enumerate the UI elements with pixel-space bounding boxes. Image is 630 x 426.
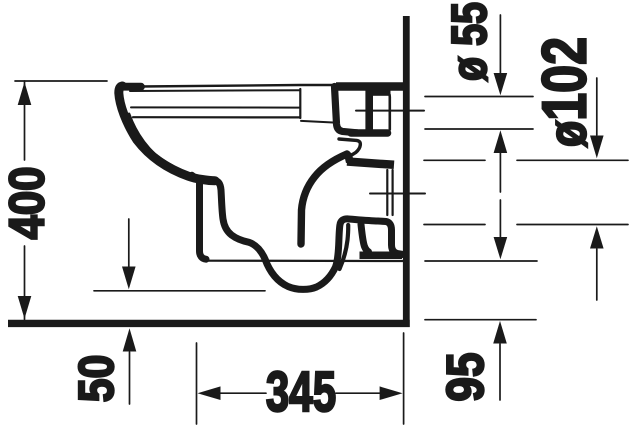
svg-text:345: 345: [266, 360, 336, 424]
svg-text:50: 50: [68, 355, 124, 403]
svg-text:ø102: ø102: [529, 37, 598, 147]
svg-text:400: 400: [0, 166, 54, 239]
svg-text:ø 55: ø 55: [443, 2, 497, 81]
svg-text:95: 95: [437, 352, 495, 401]
